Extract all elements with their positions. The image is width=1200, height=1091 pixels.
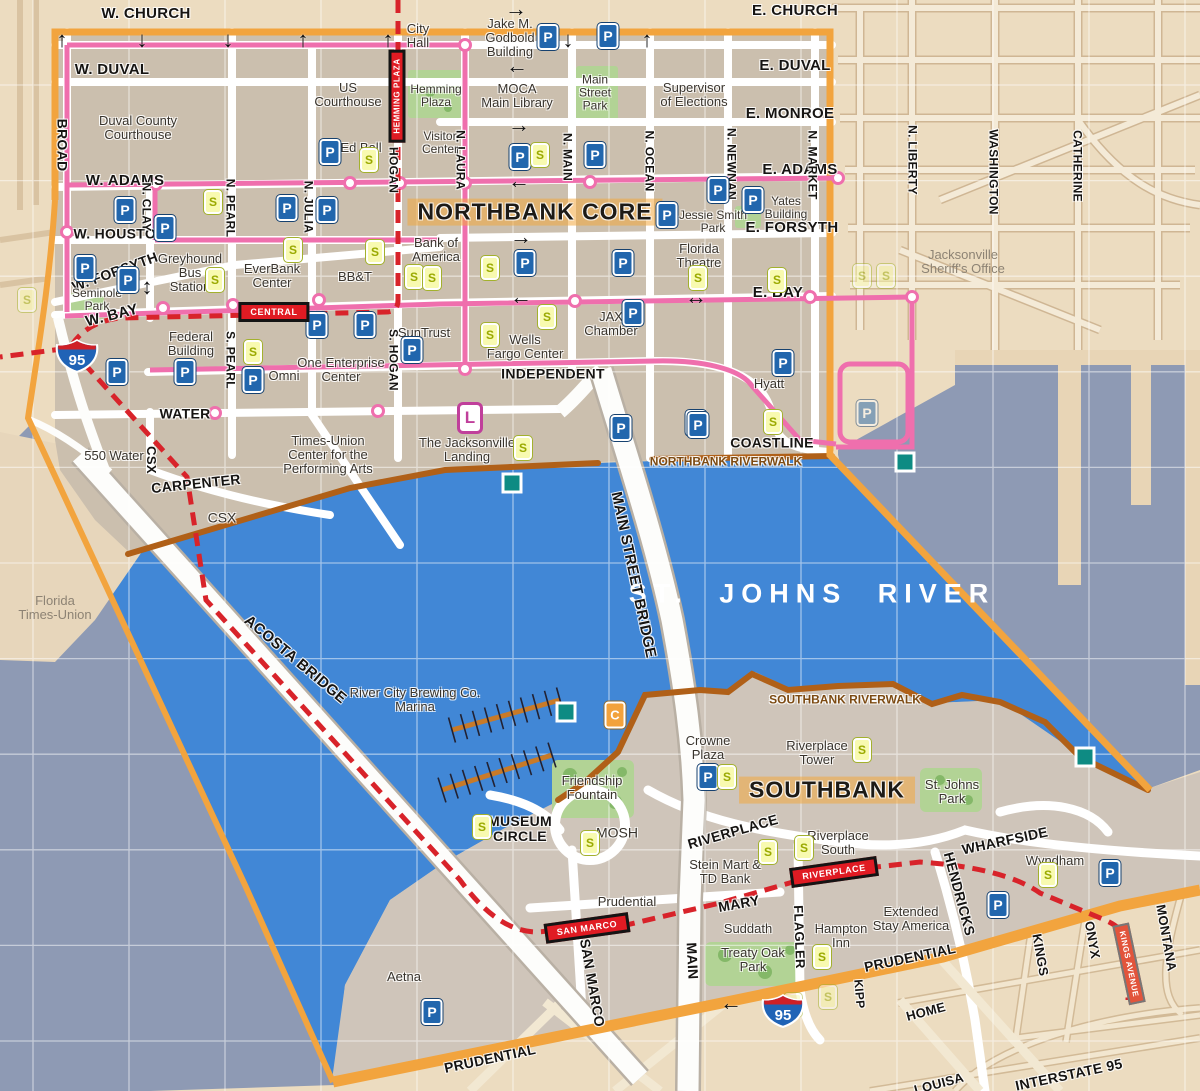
map-label-federal-building: Federal Building	[168, 330, 214, 358]
map-label-main-street-park: Main Street Park	[579, 74, 611, 113]
street-label-coastline: COASTLINE	[730, 435, 814, 450]
parking-icon: P	[402, 337, 423, 363]
parking-icon: P	[510, 144, 531, 170]
street-label-w-bay: W. BAY	[84, 302, 140, 331]
shuttle-stop-icon: S	[718, 765, 736, 789]
street-label-n-pearl: N. PEARL	[224, 179, 237, 237]
street-label-e-bay: E. BAY	[753, 285, 803, 301]
street-label-n-julia: N. JULIA	[302, 181, 315, 233]
street-label-independent: INDEPENDENT	[501, 366, 605, 381]
map-label-one-enterprise-center: One Enterprise Center	[297, 356, 384, 384]
street-label-e-duval: E. DUVAL	[759, 58, 830, 74]
map-label-bb-t: BB&T	[338, 270, 372, 284]
map-label-st-johns-park: St. Johns Park	[925, 778, 979, 806]
map-label-everbank-center: EverBank Center	[244, 262, 300, 290]
one-way-arrow-down: ↓	[223, 27, 234, 53]
parking-icon: P	[515, 250, 536, 276]
map-label-duval-county-courthouse: Duval County Courthouse	[99, 114, 177, 142]
one-way-arrow-up: ↑	[57, 27, 68, 53]
street-label-flagler: FLAGLER	[791, 905, 807, 969]
shuttle-stop-icon-muted: S	[18, 288, 36, 312]
shuttle-stop-icon: S	[423, 266, 441, 290]
map-label-ed-ball: Ed Ball	[340, 141, 381, 155]
one-way-arrow-ud: ↕	[142, 274, 153, 300]
water-taxi-dock-icon	[895, 452, 916, 473]
shuttle-stop-icon-muted: S	[877, 264, 895, 288]
shuttle-stop-icon: S	[473, 815, 491, 839]
street-label-e-monroe: E. MONROE	[746, 106, 835, 122]
map-label-extended-stay-america: Extended Stay America	[873, 905, 950, 933]
shuttle-stop-icon: S	[795, 836, 813, 860]
shuttle-stop-icon: S	[689, 266, 707, 290]
parking-icon: P	[686, 410, 707, 436]
street-label-carpenter: CARPENTER	[151, 472, 242, 496]
map-label-riverplace-south: Riverplace South	[807, 829, 868, 857]
parking-icon: P	[1100, 860, 1121, 886]
street-label-w-duval: W. DUVAL	[75, 62, 150, 78]
shuttle-stop-icon: S	[366, 240, 384, 264]
street-label-e-church: E. CHURCH	[752, 3, 838, 19]
map-label-florida-theatre: Florida Theatre	[677, 242, 722, 270]
one-way-arrow-up: ↑	[298, 27, 309, 53]
shuttle-stop-icon: S	[853, 738, 871, 762]
one-way-arrow-lr: ↔	[685, 284, 707, 310]
parking-icon: P	[175, 359, 196, 385]
street-label-n-clay: N. CLAY	[140, 183, 153, 232]
shuttle-stop-icon: S	[514, 436, 532, 460]
map-label-hyatt: Hyatt	[754, 377, 784, 391]
shuttle-stop-icon: S	[538, 305, 556, 329]
map-label-mosh: MOSH	[596, 825, 638, 840]
street-label-home: HOME	[905, 1000, 947, 1024]
map-label-times-union-center-for-the-performing-arts: Times-Union Center for the Performing Ar…	[283, 434, 373, 476]
skyway-station-kings-avenue: KINGS AVENUE	[1112, 923, 1146, 1006]
shuttle-stop-icon: S	[481, 256, 499, 280]
shuttle-stop-icon-muted: S	[819, 985, 837, 1009]
parking-icon: P	[317, 197, 338, 223]
street-label-acosta-bridge: ACOSTA BRIDGE	[241, 613, 350, 708]
parking-icon: P	[118, 267, 139, 293]
street-label-n-newnan: N. NEWNAN	[725, 128, 738, 200]
parking-icon: P	[743, 187, 764, 213]
water-taxi-dock-icon	[1075, 747, 1096, 768]
map-label-prudential: Prudential	[598, 895, 657, 909]
parking-icon: P	[657, 202, 678, 228]
map-labels-layer: W. CHURCHE. CHURCHW. DUVALE. DUVALE. MON…	[0, 0, 1200, 1091]
map-label-moca-main-library: MOCA Main Library	[481, 82, 553, 110]
map-label-yates-building: Yates Building	[765, 195, 808, 221]
street-label-catherine: CATHERINE	[1071, 130, 1084, 202]
map-label-hemming-plaza: Hemming Plaza	[410, 83, 461, 109]
map-label-riverplace-tower: Riverplace Tower	[786, 739, 847, 767]
street-label-louisa: LOUISA	[913, 1071, 966, 1091]
map-label-wyndham: Wyndham	[1026, 854, 1084, 868]
jacksonville-downtown-map[interactable]: W. CHURCHE. CHURCHW. DUVALE. DUVALE. MON…	[0, 0, 1200, 1091]
street-label-n-market: N. MARKET	[806, 130, 819, 199]
svg-text:95: 95	[69, 352, 86, 369]
map-label-aetna: Aetna	[387, 970, 421, 984]
shuttle-stop-icon: S	[244, 340, 262, 364]
parking-icon: P	[611, 415, 632, 441]
jacksonville-landing-icon: L	[457, 402, 483, 434]
parking-icon: P	[422, 999, 443, 1025]
map-label-southbank: SOUTHBANK	[739, 777, 915, 804]
one-way-arrow-up: ↑	[642, 27, 653, 53]
street-label-wharfside: WHARFSIDE	[961, 825, 1050, 858]
shuttle-stop-icon: S	[768, 268, 786, 292]
parking-icon: P	[708, 177, 729, 203]
street-label-w-houston: W. HOUSTON	[74, 226, 167, 241]
skyway-station-hemming-plaza: HEMMING PLAZA	[389, 49, 406, 142]
street-label-main-street-bridge: MAIN STREET BRIDGE	[607, 490, 658, 659]
map-label-550-water: 550 Water	[84, 449, 144, 463]
map-label-jake-m-godbold-building: Jake M. Godbold Building	[485, 17, 534, 59]
shuttle-stop-icon: S	[764, 410, 782, 434]
street-label-water: WATER	[159, 406, 210, 421]
parking-icon: P	[598, 23, 619, 49]
parking-icon: P	[277, 195, 298, 221]
street-label-main: MAIN	[683, 942, 700, 980]
parking-icon: P	[988, 892, 1009, 918]
parking-icon: P	[115, 197, 136, 223]
water-taxi-dock-icon	[556, 702, 577, 723]
water-taxi-dock-icon	[502, 473, 523, 494]
street-label-kipp: KIPP	[851, 979, 866, 1009]
map-label-supervisor-of-elections: Supervisor of Elections	[660, 81, 727, 109]
parking-icon: P	[155, 215, 176, 241]
parking-icon: P	[698, 764, 719, 790]
street-label-n-liberty: N. LIBERTY	[906, 125, 919, 195]
parking-icon: P	[307, 312, 328, 338]
map-label-crowne-plaza: Crowne Plaza	[686, 734, 731, 762]
street-label-n-laura: N. LAURA	[454, 130, 467, 190]
shuttle-stop-icon: S	[360, 148, 378, 172]
map-label-jacksonville-sheriff-s-office: Jacksonville Sheriff's Office	[921, 248, 1005, 276]
street-label-interstate-95: INTERSTATE 95	[1014, 1056, 1124, 1091]
street-label-washington: WASHINGTON	[987, 129, 1000, 214]
svg-text:95: 95	[775, 1007, 792, 1024]
parking-icon-muted: P	[857, 400, 878, 426]
street-label-w-church: W. CHURCH	[101, 6, 190, 22]
street-label-san-marco: SAN MARCO	[577, 938, 607, 1028]
parking-icon: P	[107, 359, 128, 385]
street-label-n-main: N. MAIN	[561, 133, 574, 181]
parking-icon: P	[613, 250, 634, 276]
one-way-arrow-left: ←	[508, 168, 530, 194]
one-way-arrow-left: ←	[720, 990, 742, 1016]
street-label-broad: BROAD	[54, 119, 69, 172]
street-label-n-ocean: N. OCEAN	[643, 130, 656, 191]
map-label-stein-mart-td-bank: Stein Mart & TD Bank	[689, 858, 761, 886]
map-label-florida-times-union: Florida Times-Union	[18, 594, 91, 622]
street-label-e-adams: E. ADAMS	[762, 162, 837, 178]
map-label-bank-of-america: Bank of America	[412, 236, 460, 264]
map-label-csx: CSX	[208, 510, 237, 525]
street-label-montana: MONTANA	[1153, 904, 1179, 973]
parking-icon: P	[773, 350, 794, 376]
water-taxi-icon: C	[605, 702, 626, 729]
shuttle-stop-icon-muted: S	[853, 264, 871, 288]
parking-icon: P	[538, 24, 559, 50]
street-label-mary: MARY	[717, 893, 761, 915]
street-label-w-adams: W. ADAMS	[86, 173, 165, 189]
one-way-arrow-up: ↑	[383, 27, 394, 53]
one-way-arrow-down: ↓	[137, 27, 148, 53]
parking-icon: P	[585, 142, 606, 168]
street-label-riverplace: RIVERPLACE	[686, 812, 780, 852]
map-label-friendship-fountain: Friendship Fountain	[562, 774, 623, 802]
street-label-n-hogan: N. HOGAN	[387, 131, 400, 193]
map-label-st-johns-river: ST. JOHNS RIVER	[629, 579, 996, 608]
shuttle-stop-icon: S	[204, 190, 222, 214]
street-label-e-forsyth: E. FORSYTH	[745, 220, 838, 236]
map-label-greyhound-bus-station: Greyhound Bus Station	[158, 252, 222, 294]
shuttle-stop-icon-muted: S	[784, 993, 802, 1017]
map-label-hampton-inn: Hampton Inn	[815, 922, 868, 950]
map-label-southbank-riverwalk: SOUTHBANK RIVERWALK	[769, 694, 921, 707]
shuttle-stop-icon: S	[813, 945, 831, 969]
map-label-jessie-smith-park: Jessie Smith Park	[679, 209, 747, 235]
parking-icon: P	[243, 367, 264, 393]
map-label-northbank-core: NORTHBANK CORE	[407, 199, 662, 226]
map-label-omni: Omni	[268, 369, 299, 383]
parking-icon: P	[688, 412, 709, 438]
map-label-treaty-oak-park: Treaty Oak Park	[721, 946, 785, 974]
shuttle-stop-icon: S	[284, 238, 302, 262]
street-label-csx: CSX	[144, 446, 158, 474]
map-label-wells-fargo-center: Wells Fargo Center	[487, 333, 564, 361]
map-label-city-hall: City Hall	[407, 22, 429, 50]
street-label-s-hogan: S. HOGAN	[387, 329, 400, 391]
shuttle-stop-icon: S	[531, 143, 549, 167]
street-label-s-pearl: S. PEARL	[224, 331, 237, 389]
one-way-arrow-right: →	[505, 0, 527, 22]
shuttle-stop-icon: S	[1039, 863, 1057, 887]
parking-icon: P	[623, 300, 644, 326]
parking-icon: P	[355, 312, 376, 338]
street-label-kings: KINGS	[1029, 933, 1050, 977]
parking-icon: P	[75, 255, 96, 281]
map-label-us-courthouse: US Courthouse	[314, 81, 381, 109]
one-way-arrow-right: →	[508, 112, 530, 138]
map-label-jax-chamber: JAX Chamber	[584, 310, 637, 338]
one-way-arrow-down: ↓	[563, 27, 574, 53]
street-label-prudential: PRUDENTIAL	[863, 941, 957, 975]
skyway-station-central: CENTRAL	[238, 302, 309, 322]
skyway-station-riverplace: RIVERPLACE	[789, 856, 879, 888]
one-way-arrow-left: ←	[506, 53, 528, 79]
one-way-arrow-right: →	[510, 224, 532, 250]
shuttle-stop-icon: S	[206, 268, 224, 292]
map-label-visitor-center: Visitor Center	[422, 130, 458, 156]
parking-icon: P	[320, 139, 341, 165]
shuttle-stop-icon: S	[405, 265, 423, 289]
map-label-suntrust: SunTrust	[398, 326, 450, 340]
map-label-river-city-brewing-co-marina: River City Brewing Co. Marina	[350, 686, 481, 714]
street-label-w-forsyth: W. FORSYTH	[70, 249, 160, 294]
map-label-northbank-riverwalk: NORTHBANK RIVERWALK	[650, 456, 802, 469]
map-label-seminole-park: Seminole Park	[72, 287, 122, 313]
street-label-museum-circle: MUSEUM CIRCLE	[488, 814, 552, 844]
street-label-onyx: ONYX	[1082, 920, 1102, 960]
map-label-suddath: Suddath	[724, 922, 772, 936]
one-way-arrow-left: ←	[510, 284, 532, 310]
skyway-station-san-marco: SAN MARCO	[544, 912, 631, 944]
street-label-prudential: PRUDENTIAL	[443, 1042, 537, 1076]
shuttle-stop-icon: S	[481, 323, 499, 347]
street-label-hendricks: HENDRICKS	[941, 851, 978, 938]
map-label-the-jacksonville-landing: The Jacksonville Landing	[419, 436, 515, 464]
shuttle-stop-icon: S	[581, 831, 599, 855]
shuttle-stop-icon: S	[759, 840, 777, 864]
